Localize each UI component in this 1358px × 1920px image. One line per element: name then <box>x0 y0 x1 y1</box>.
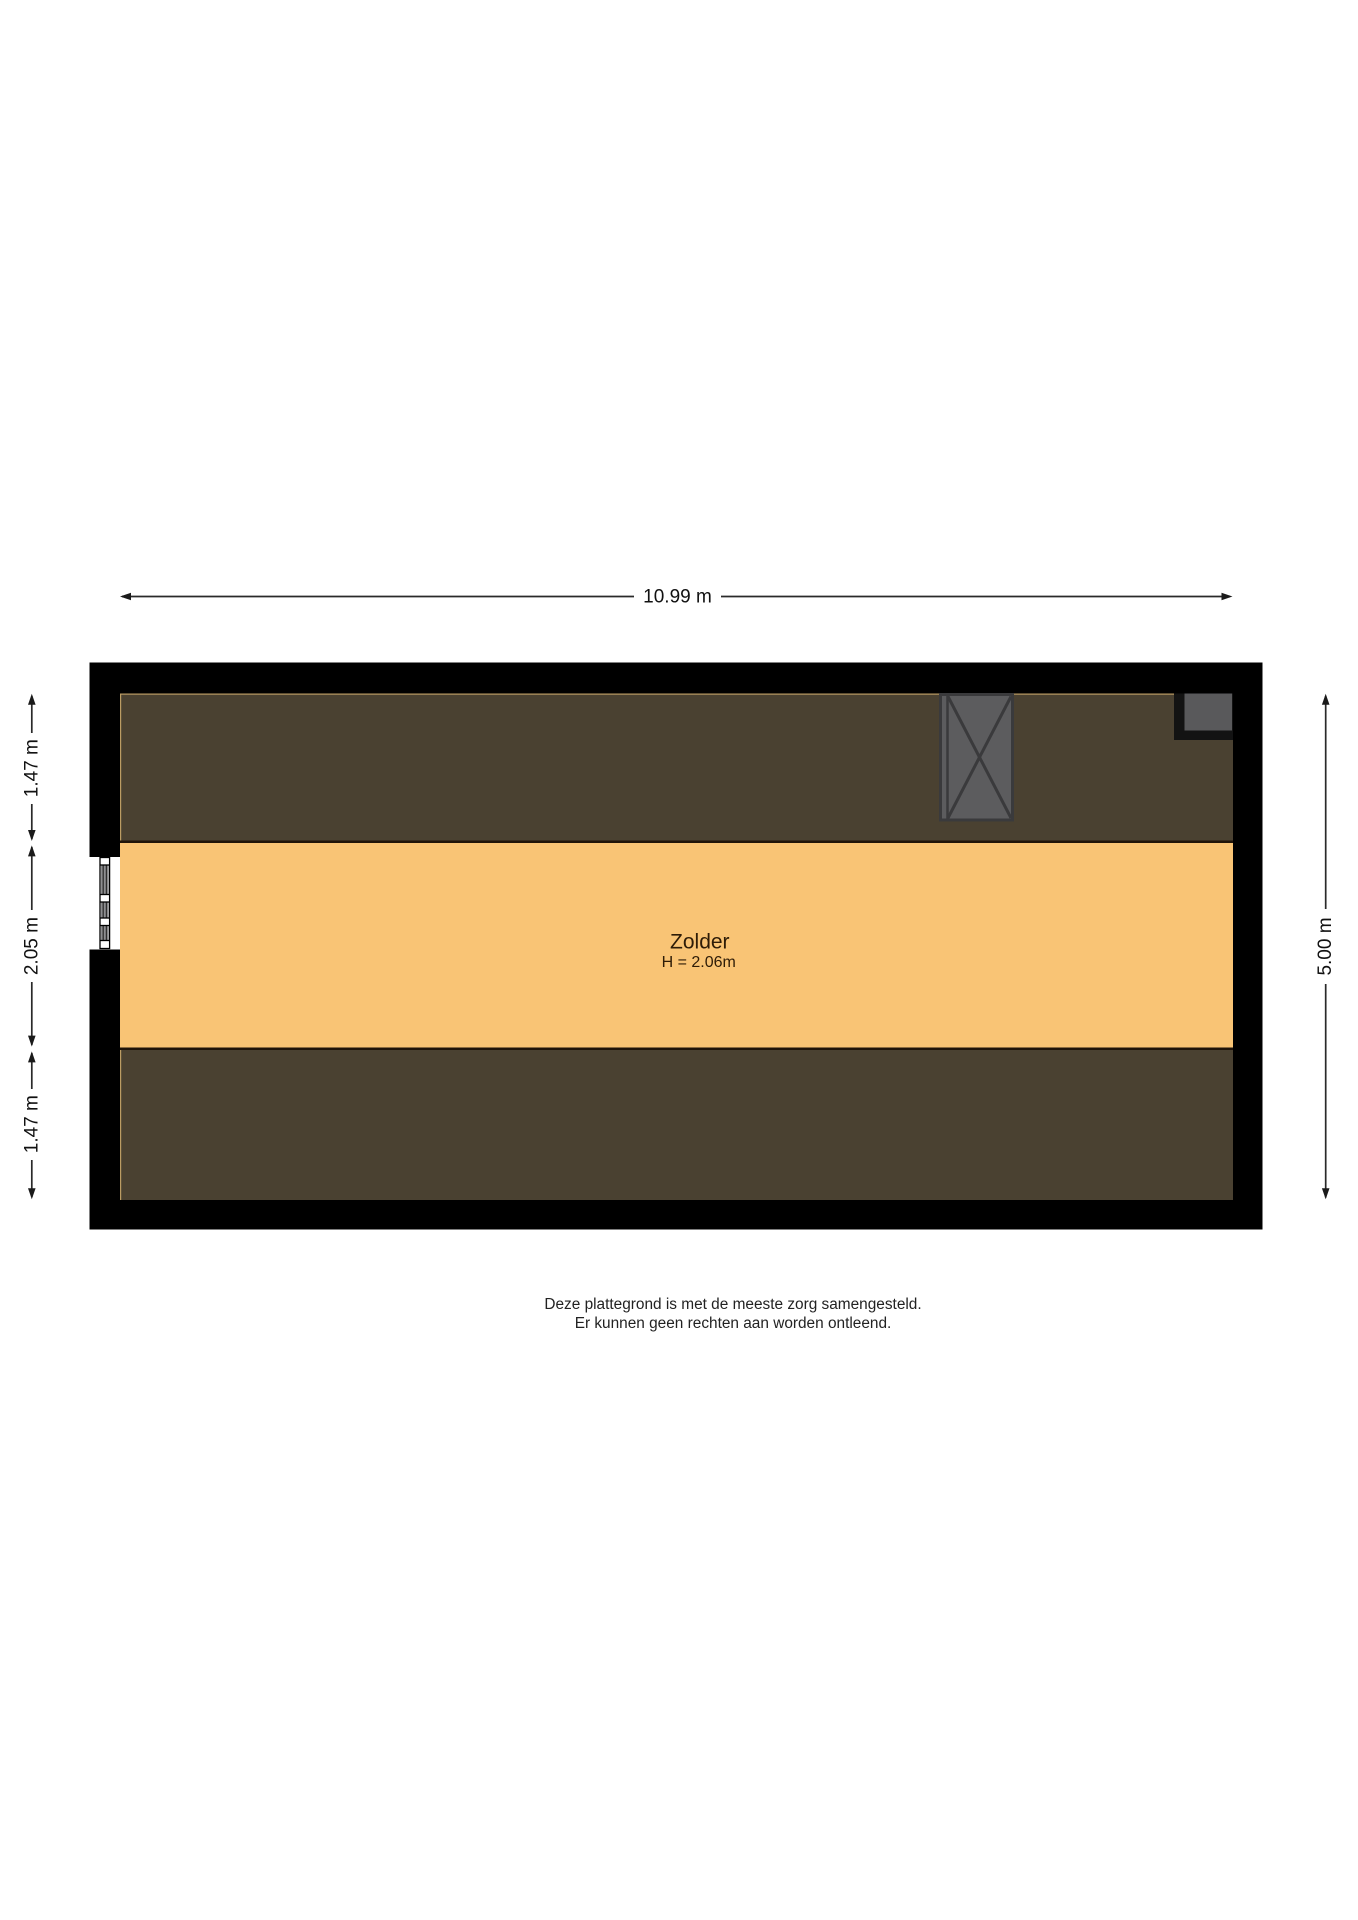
svg-text:1.47 m: 1.47 m <box>21 1095 42 1153</box>
svg-text:10.99 m: 10.99 m <box>643 587 712 608</box>
svg-text:H = 2.06m: H = 2.06m <box>662 954 736 971</box>
svg-text:2.05 m: 2.05 m <box>21 917 42 975</box>
svg-text:Deze plattegrond is met de mee: Deze plattegrond is met de meeste zorg s… <box>544 1296 921 1313</box>
svg-text:1.47 m: 1.47 m <box>21 739 42 797</box>
svg-text:Zolder: Zolder <box>670 930 730 953</box>
svg-text:5.00 m: 5.00 m <box>1315 917 1336 975</box>
svg-text:Er kunnen geen rechten aan wor: Er kunnen geen rechten aan worden ontlee… <box>575 1315 892 1332</box>
